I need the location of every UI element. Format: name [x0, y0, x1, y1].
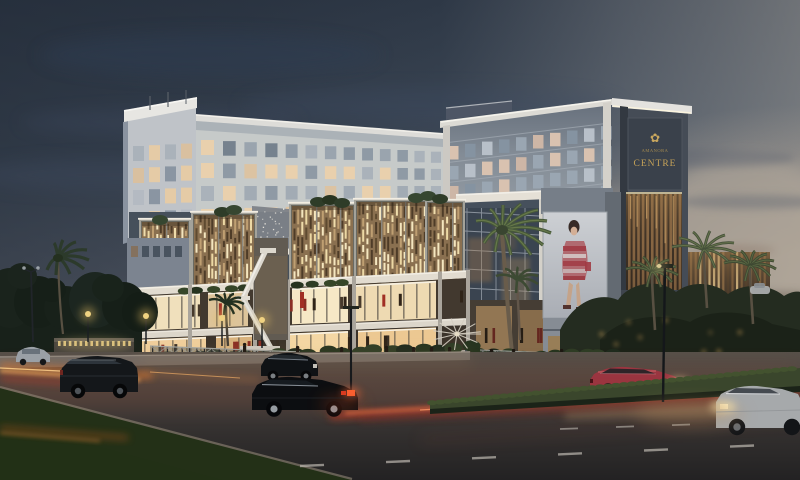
svg-text:CENTRE: CENTRE [634, 159, 677, 169]
svg-text:✿: ✿ [650, 131, 660, 145]
svg-text:AMANORA: AMANORA [642, 148, 669, 153]
